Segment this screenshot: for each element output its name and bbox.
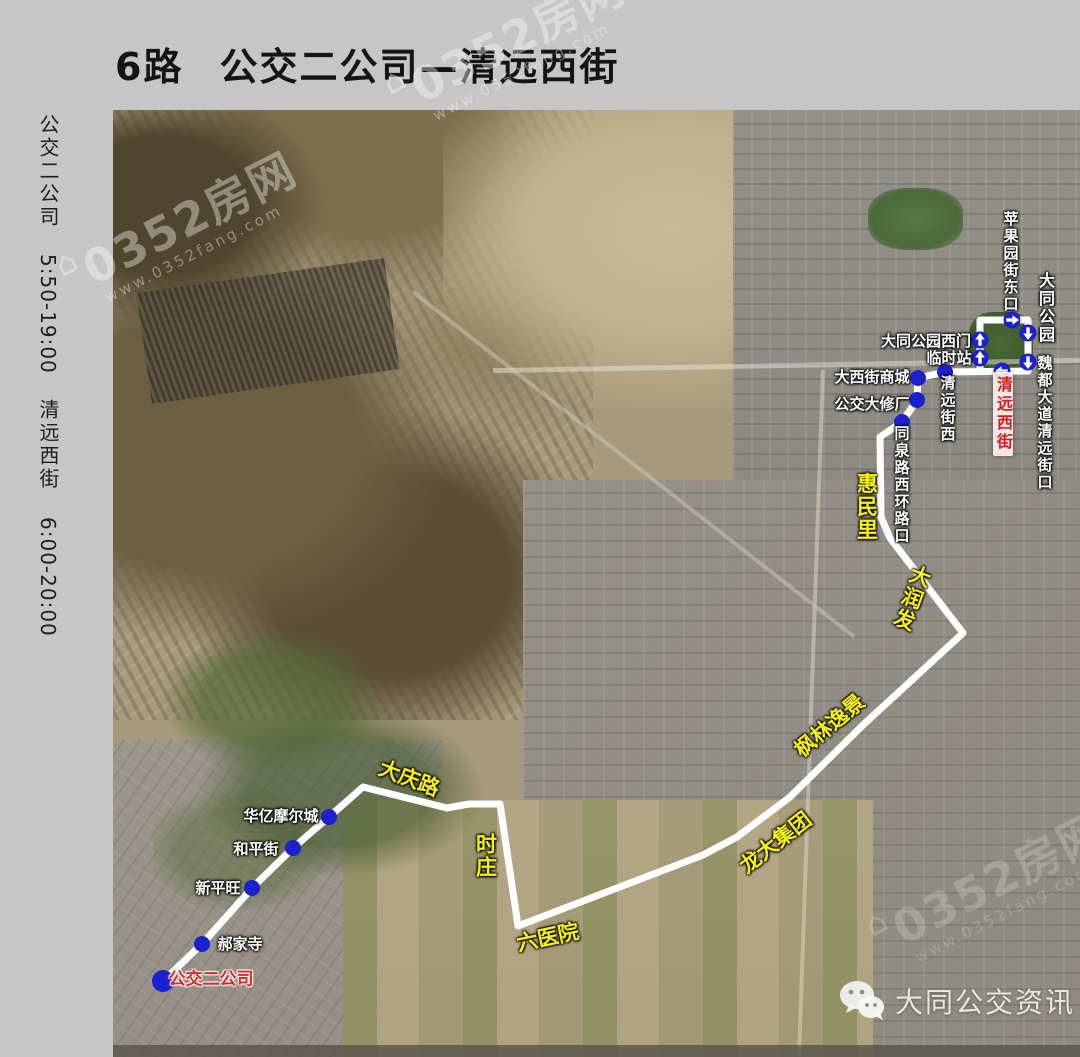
road-label: 大庆路 xyxy=(375,757,442,801)
station-label: 魏都大道清远街口 xyxy=(1037,355,1052,491)
station-label: 大西街商城 xyxy=(834,369,909,386)
road-label: 大润发 xyxy=(889,562,932,634)
start-terminal-name: 公交二公司 xyxy=(36,114,60,229)
page-title: 6路公交二公司—清远西街 xyxy=(115,36,619,91)
road-label: 六医院 xyxy=(515,920,581,956)
schedule-sidebar: 公交二公司 5:50-19:00 清远西街 6:00-20:00 xyxy=(34,114,63,674)
road-label: 龙大集团 xyxy=(736,808,816,878)
station-label: 苹果园街东口 xyxy=(1003,211,1018,313)
station-label: 郝家寺 xyxy=(217,936,262,953)
station-label: 同泉路西环路口 xyxy=(894,426,909,545)
station-label: 大同公园 xyxy=(1037,272,1053,344)
station-label: 临时站 xyxy=(926,350,971,367)
map-labels-layer: 苹果园街东口大同公园大同公园西门临时站魏都大道清远街口清远西街大西街商城公交大修… xyxy=(113,110,1080,1057)
wechat-icon xyxy=(838,980,886,1022)
route-number: 6路 xyxy=(115,45,183,89)
page: 6路公交二公司—清远西街 公交二公司 5:50-19:00 清远西街 6:00-… xyxy=(0,0,1080,1057)
end-terminal-hours: 6:00-20:00 xyxy=(36,517,60,637)
route-map: 苹果园街东口大同公园大同公园西门临时站魏都大道清远街口清远西街大西街商城公交大修… xyxy=(113,110,1080,1057)
station-label: 清远街西 xyxy=(940,375,955,443)
station-label: 大同公园西门 xyxy=(881,333,971,350)
start-terminal-hours: 5:50-19:00 xyxy=(36,254,60,374)
station-label: 公交大修厂 xyxy=(834,396,909,413)
terminal-label: 公交二公司 xyxy=(169,971,254,990)
station-label: 和平街 xyxy=(233,841,278,858)
road-label: 时庄 xyxy=(475,833,496,879)
road-label: 枫林逸景 xyxy=(790,690,869,762)
end-terminal-name: 清远西街 xyxy=(36,399,60,491)
road-label: 惠民里 xyxy=(856,473,877,542)
station-label: 华亿摩尔城 xyxy=(243,808,318,825)
brand-footer: 大同公交资讯 xyxy=(838,980,1075,1022)
route-name: 公交二公司—清远西街 xyxy=(219,45,619,89)
brand-name: 大同公交资讯 xyxy=(895,981,1075,1021)
destination-badge: 清远西街 xyxy=(993,372,1013,456)
station-label: 新平旺 xyxy=(195,880,240,897)
